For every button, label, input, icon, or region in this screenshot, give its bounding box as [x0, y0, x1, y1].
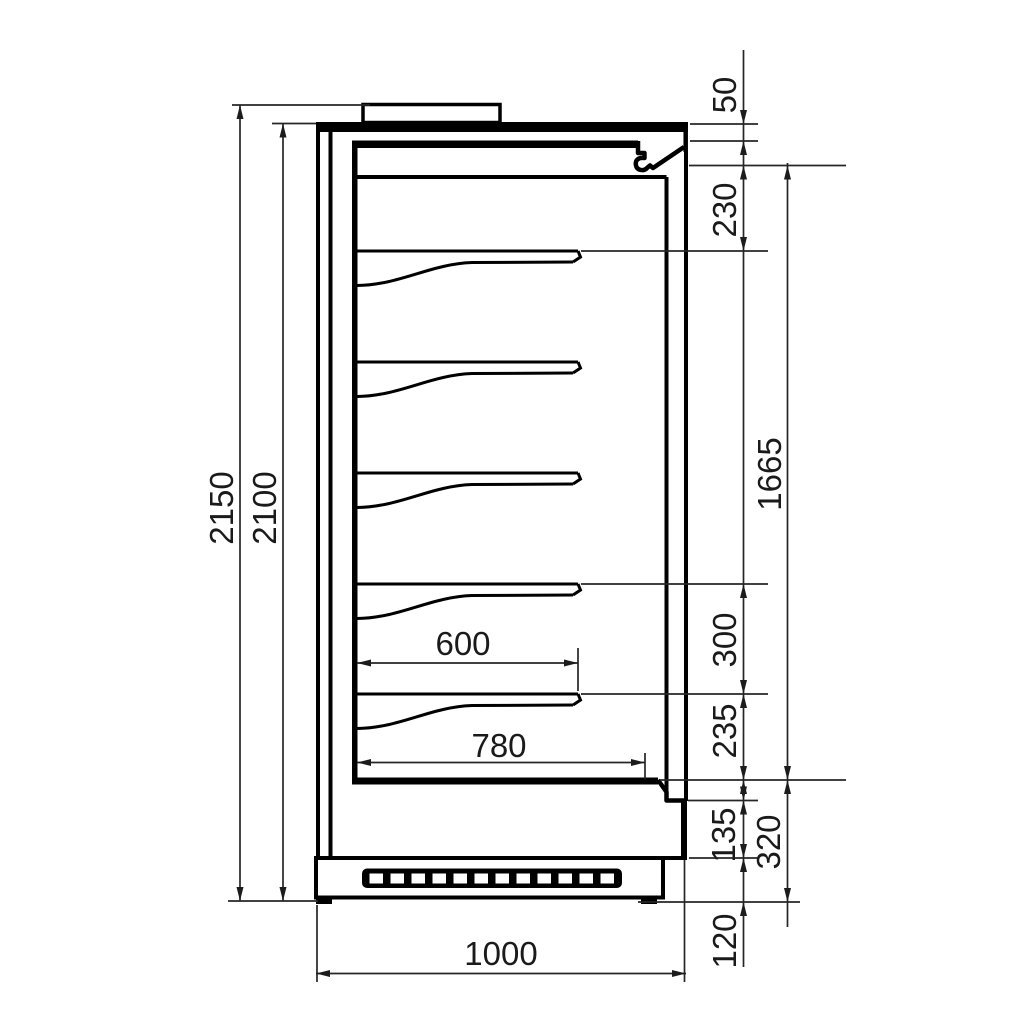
dim-label-top-panel: 50	[706, 77, 743, 114]
grille-slot	[391, 874, 405, 884]
dim-label-shelf-spacing: 300	[706, 612, 743, 667]
multideck-section-drawing: 2150 2100 50 230 1665 300 235 135 320 12…	[0, 0, 1024, 1024]
dim-label-opening-height: 1665	[751, 437, 788, 510]
shelf	[357, 694, 581, 729]
cabinet-outline	[316, 105, 688, 905]
dim-label-plinth-height: 120	[706, 913, 743, 968]
shelf	[357, 251, 581, 286]
grille-slot	[454, 874, 468, 884]
grille-slot	[370, 874, 384, 884]
bottom-deck	[352, 778, 658, 785]
ventilation-grille	[362, 869, 622, 889]
shelf	[357, 362, 581, 397]
grille-slot	[412, 874, 426, 884]
dim-label-body-height: 2100	[246, 471, 283, 544]
grille-slot	[559, 874, 573, 884]
foot-left	[316, 898, 332, 905]
grille-slot	[538, 874, 552, 884]
grille-slot	[517, 874, 531, 884]
dimension-labels: 2150 2100 50 230 1665 300 235 135 320 12…	[203, 77, 788, 972]
back-panel	[352, 141, 358, 785]
base-step	[658, 780, 686, 801]
grille-slot	[475, 874, 489, 884]
canopy-panel	[352, 141, 638, 149]
technical-drawing-page: 2150 2100 50 230 1665 300 235 135 320 12…	[0, 0, 1024, 1024]
grille-slot	[580, 874, 594, 884]
grille-slot	[433, 874, 447, 884]
top-panel	[316, 122, 688, 132]
shelf	[357, 473, 581, 508]
shelf	[357, 584, 581, 619]
dim-label-overall-height: 2150	[203, 471, 240, 544]
dim-label-deck-depth: 780	[471, 727, 526, 764]
grille-slot	[496, 874, 510, 884]
dim-label-overall-depth: 1000	[464, 935, 537, 972]
dim-label-base-section: 320	[750, 814, 787, 869]
dim-label-canopy-to-shelf: 230	[706, 182, 743, 237]
grille-slot	[601, 874, 615, 884]
foot-right	[641, 898, 657, 905]
fan-unit-box	[363, 105, 500, 123]
dim-label-step-height: 135	[705, 807, 742, 862]
dim-label-shelf-to-deck: 235	[706, 703, 743, 758]
air-discharge-hook	[636, 141, 684, 170]
dim-label-shelf-depth: 600	[435, 625, 490, 662]
